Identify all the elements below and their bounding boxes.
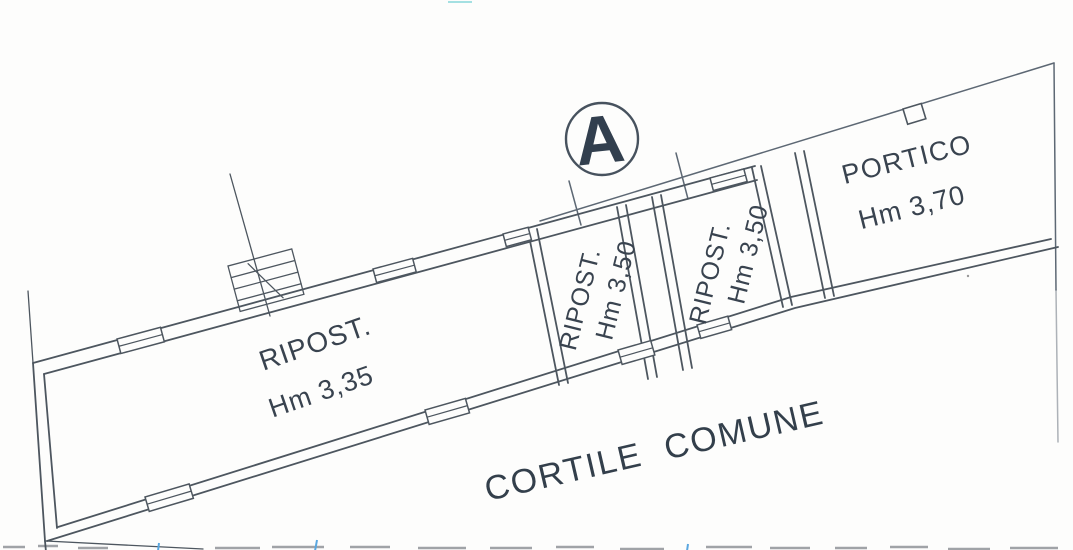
scan-speck <box>967 275 969 277</box>
portico-left-wall <box>795 151 834 298</box>
window-symbol <box>425 398 470 424</box>
left-wall-outer <box>33 363 45 541</box>
lot-boundary <box>28 63 1058 442</box>
room-height-ripost-2: Hm 3,50 <box>722 201 774 306</box>
room-height-portico: Hm 3,70 <box>855 180 968 235</box>
window-symbol <box>503 227 531 246</box>
unit-badge-label: A <box>571 100 628 181</box>
window-symbol <box>618 341 655 365</box>
courtyard-label: CORTILE COMUNE <box>481 394 828 509</box>
boundary-tick <box>569 181 581 225</box>
room2-left-wall <box>652 195 692 370</box>
scan-blue-tick <box>158 543 159 550</box>
right-boundary-line-faded <box>1056 290 1058 442</box>
left-wall-inner <box>44 374 57 528</box>
right-boundary-line <box>1054 63 1056 290</box>
stairs-symbol <box>228 174 304 316</box>
window-symbol <box>145 484 193 511</box>
cadastral-plan-drawing: A RIPOST. Hm 3,35 RIPOST. Hm 3,50 RIPOST… <box>0 0 1073 550</box>
pillar-symbol <box>903 103 926 124</box>
scanned-floor-plan-page: A RIPOST. Hm 3,35 RIPOST. Hm 3,50 RIPOST… <box>0 0 1073 550</box>
room1-left-wall <box>528 229 568 385</box>
left-boundary-extension <box>28 291 33 363</box>
unit-badge: A <box>566 100 638 181</box>
scan-blue-tick <box>687 544 688 550</box>
bottom-wall-outer <box>47 247 1058 541</box>
scan-blue-tick <box>315 540 317 550</box>
window-symbol <box>117 327 164 353</box>
